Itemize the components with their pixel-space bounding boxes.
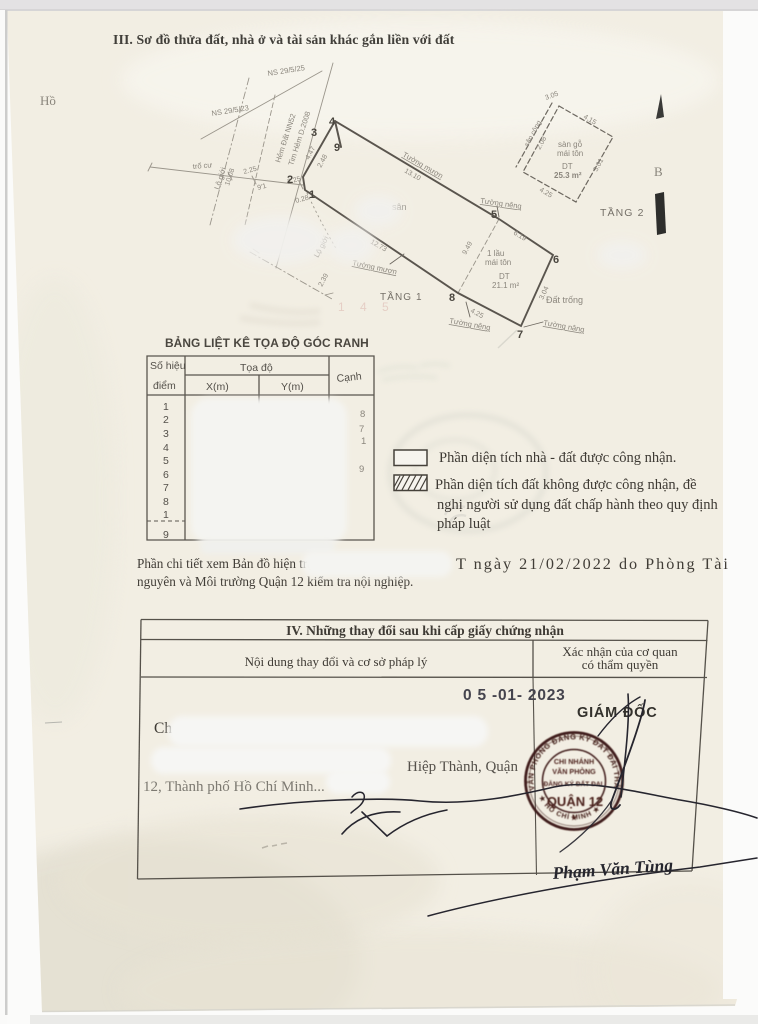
svg-text:QUẬN 12: QUẬN 12: [547, 794, 603, 809]
svg-text:4: 4: [329, 116, 336, 128]
svg-text:1: 1: [309, 189, 315, 201]
svg-text:9: 9: [163, 529, 169, 541]
svg-text:Đất trống: Đất trống: [546, 295, 583, 305]
svg-text:Phần diện tích nhà - đất được: Phần diện tích nhà - đất được công nhận.: [439, 450, 676, 466]
svg-text:TẦNG 1: TẦNG 1: [380, 290, 423, 303]
svg-text:1: 1: [163, 401, 169, 413]
svg-text:có thẩm quyền: có thẩm quyền: [582, 657, 659, 672]
svg-text:CHI NHÁNH: CHI NHÁNH: [554, 757, 594, 766]
svg-text:7: 7: [163, 482, 169, 494]
svg-text:GIÁM ĐỐC: GIÁM ĐỐC: [577, 703, 658, 721]
svg-text:1 lầu: 1 lầu: [487, 249, 504, 258]
svg-text:B: B: [654, 164, 663, 179]
svg-text:Nội dung thay đổi và cơ sở phá: Nội dung thay đổi và cơ sở pháp lý: [245, 654, 428, 669]
svg-text:12, Thành phố Hồ Chí Minh...: 12, Thành phố Hồ Chí Minh...: [143, 779, 325, 795]
svg-text:X(m): X(m): [206, 381, 229, 393]
svg-text:3: 3: [311, 127, 317, 139]
svg-text:Số hiệu: Số hiệu: [150, 360, 186, 372]
svg-text:1: 1: [361, 436, 366, 447]
svg-text:1: 1: [163, 509, 169, 521]
svg-text:nghị người sử dụng đất chấp hà: nghị người sử dụng đất chấp hành theo qu…: [437, 497, 718, 513]
svg-text:3: 3: [163, 428, 169, 440]
svg-text:Hiệp Thành, Quận: Hiệp Thành, Quận: [407, 759, 518, 775]
svg-text:pháp luật: pháp luật: [437, 516, 491, 532]
svg-text:21.1 m²: 21.1 m²: [492, 281, 519, 290]
svg-text:TẦNG 2: TẦNG 2: [600, 206, 645, 219]
svg-text:8: 8: [449, 292, 455, 304]
svg-text:mái tôn: mái tôn: [557, 149, 583, 158]
svg-text:4: 4: [163, 442, 169, 454]
svg-text:trổ cư: trổ cư: [192, 160, 212, 171]
svg-text:7: 7: [517, 329, 523, 341]
svg-text:mái tôn: mái tôn: [485, 258, 511, 267]
svg-text:★: ★: [571, 814, 578, 822]
svg-text:Phần diện tích đất không được: Phần diện tích đất không được công nhận,…: [435, 477, 697, 493]
svg-text:2: 2: [287, 174, 293, 186]
svg-text:6: 6: [163, 469, 169, 481]
svg-text:8: 8: [163, 496, 169, 508]
svg-text:BẢNG LIỆT KÊ TỌA ĐỘ GÓC RANH: BẢNG LIỆT KÊ TỌA ĐỘ GÓC RANH: [165, 335, 369, 350]
svg-text:DT: DT: [499, 272, 510, 281]
svg-text:Hồ: Hồ: [40, 93, 56, 108]
svg-text:Tọa độ: Tọa độ: [240, 362, 273, 374]
svg-text:7: 7: [359, 424, 364, 435]
svg-text:6: 6: [553, 254, 559, 266]
svg-text:5: 5: [491, 209, 497, 221]
svg-text:IV. Những thay đổi sau khi cấp: IV. Những thay đổi sau khi cấp giấy chứn…: [286, 623, 564, 638]
svg-text:0 5 -01- 2023: 0 5 -01- 2023: [463, 687, 566, 704]
svg-text:9: 9: [334, 142, 340, 154]
svg-text:điểm: điểm: [153, 380, 176, 392]
svg-text:8: 8: [360, 409, 365, 420]
svg-text:T ngày 21/02/2022 do Phòng Tài: T ngày 21/02/2022 do Phòng Tài: [456, 555, 730, 573]
svg-text:DT: DT: [562, 162, 573, 171]
svg-text:III. Sơ đồ thửa đất, nhà ở và: III. Sơ đồ thửa đất, nhà ở và tài sản kh…: [113, 32, 455, 47]
svg-text:sàn gỗ: sàn gỗ: [558, 140, 583, 149]
svg-text:VĂN PHÒNG: VĂN PHÒNG: [552, 767, 596, 776]
svg-text:5: 5: [163, 455, 169, 467]
svg-text:9: 9: [359, 464, 364, 475]
svg-text:Y(m): Y(m): [281, 381, 304, 393]
svg-text:2: 2: [163, 414, 169, 426]
svg-text:25.3 m²: 25.3 m²: [554, 171, 582, 180]
